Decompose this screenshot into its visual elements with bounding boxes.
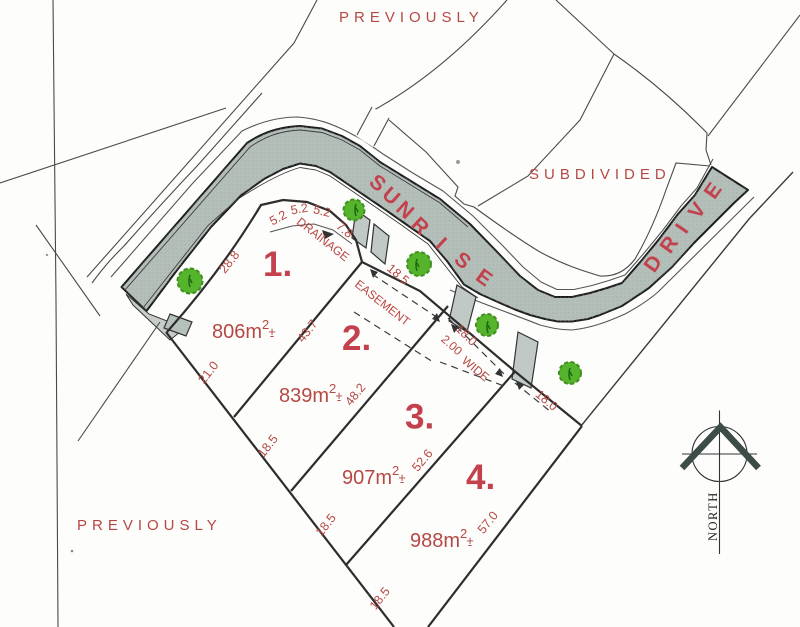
svg-text:4.: 4. [466,458,495,497]
svg-text:2.: 2. [342,319,371,358]
svg-text:PREVIOUSLY: PREVIOUSLY [77,517,222,534]
svg-text:5.2: 5.2 [290,201,310,218]
svg-text:3.: 3. [405,398,434,437]
svg-text:1.: 1. [263,245,292,284]
svg-text:NORTH: NORTH [706,491,720,541]
svg-text:PREVIOUSLY: PREVIOUSLY [339,9,484,26]
svg-text:SUBDIVIDED: SUBDIVIDED [529,166,671,183]
